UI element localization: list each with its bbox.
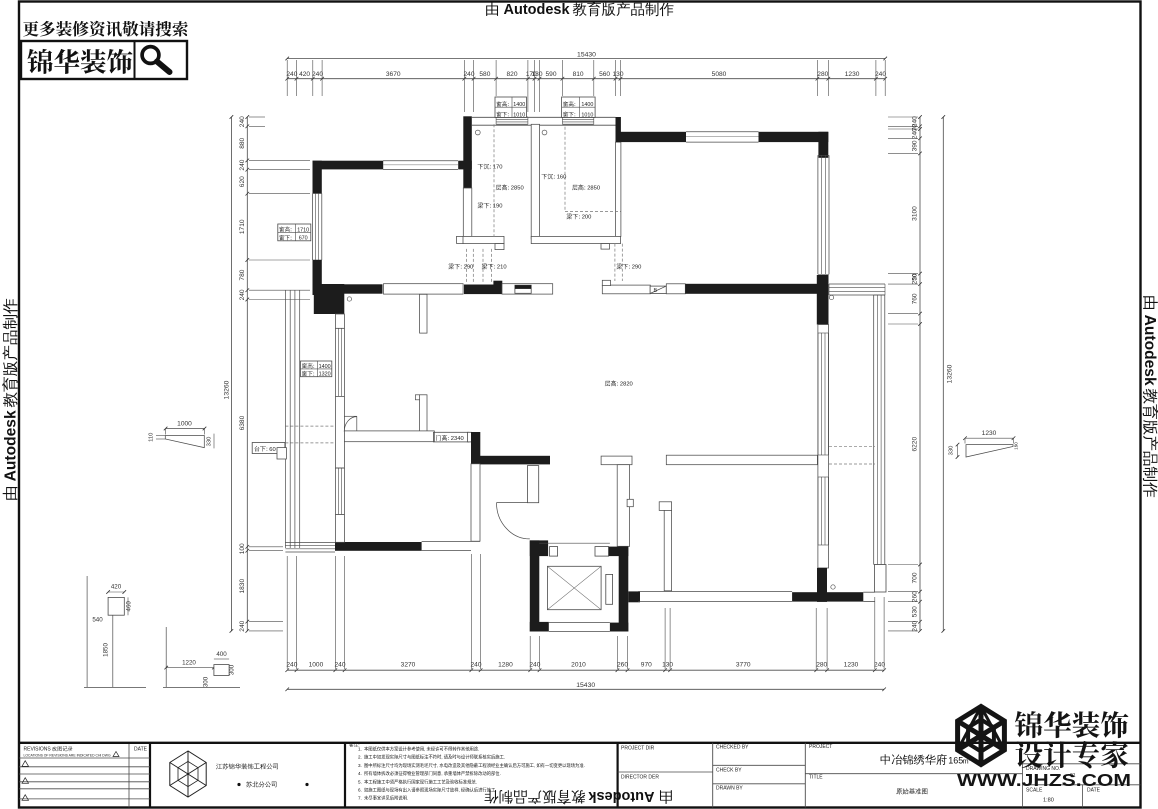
svg-text:880: 880 xyxy=(239,137,246,148)
svg-text:300: 300 xyxy=(229,664,236,675)
svg-text:B: B xyxy=(654,288,658,294)
svg-text:60: 60 xyxy=(269,447,275,453)
svg-text:20: 20 xyxy=(913,274,919,280)
svg-text:图中所标注尺寸均为现场实测毛坯尺寸, 水电改造及其他隐蔽工程: 图中所标注尺寸均为现场实测毛坯尺寸, 水电改造及其他隐蔽工程须经业主确认后方可施… xyxy=(364,762,585,769)
svg-text:590: 590 xyxy=(545,71,556,78)
svg-text:100: 100 xyxy=(239,543,246,554)
svg-text:190: 190 xyxy=(493,204,503,210)
svg-text:330: 330 xyxy=(949,446,955,456)
svg-text:3770: 3770 xyxy=(736,662,751,669)
svg-text:165: 165 xyxy=(948,756,963,766)
svg-text:15430: 15430 xyxy=(577,52,596,59)
svg-text:620: 620 xyxy=(239,176,246,187)
svg-text:CHECK BY: CHECK BY xyxy=(716,768,742,774)
svg-text:240: 240 xyxy=(875,71,886,78)
svg-text:780: 780 xyxy=(239,269,246,280)
svg-text:DIRECTOR DER: DIRECTOR DER xyxy=(621,775,659,781)
svg-text:110: 110 xyxy=(149,433,155,442)
svg-text:Autodesk: Autodesk xyxy=(3,410,20,481)
svg-text:240: 240 xyxy=(334,662,345,669)
svg-text:460: 460 xyxy=(126,601,133,612)
svg-text:130: 130 xyxy=(612,71,623,78)
svg-text:13260: 13260 xyxy=(947,364,954,383)
svg-text:160: 160 xyxy=(557,175,567,181)
svg-text:700: 700 xyxy=(912,572,919,583)
svg-text:1220: 1220 xyxy=(182,660,196,667)
svg-text:420: 420 xyxy=(299,71,310,78)
svg-text:Autodesk: Autodesk xyxy=(588,788,655,804)
svg-text:1710: 1710 xyxy=(297,227,309,233)
svg-text:1320: 1320 xyxy=(319,372,331,378)
svg-text:1000: 1000 xyxy=(177,421,192,428)
svg-text:REVISIONS: REVISIONS xyxy=(24,747,52,753)
svg-text:170: 170 xyxy=(493,165,503,171)
svg-text:TITLE: TITLE xyxy=(809,775,823,781)
svg-text:330: 330 xyxy=(207,437,213,447)
svg-text:240: 240 xyxy=(470,662,481,669)
svg-text:1010: 1010 xyxy=(513,112,525,118)
svg-text:1400: 1400 xyxy=(319,364,331,370)
svg-text:1280: 1280 xyxy=(498,662,513,669)
svg-text:1010: 1010 xyxy=(581,112,593,118)
svg-text:240: 240 xyxy=(239,159,246,170)
svg-text:400: 400 xyxy=(216,651,227,658)
svg-text:Autodesk: Autodesk xyxy=(504,2,571,18)
svg-text:1230: 1230 xyxy=(844,662,859,669)
svg-text:210: 210 xyxy=(497,265,507,271)
svg-text:15430: 15430 xyxy=(576,682,595,689)
svg-text:2820: 2820 xyxy=(620,382,633,388)
svg-text:240: 240 xyxy=(529,662,540,669)
svg-text:240: 240 xyxy=(874,662,885,669)
svg-text:13260: 13260 xyxy=(223,380,230,399)
svg-text:240: 240 xyxy=(463,71,474,78)
svg-text:240: 240 xyxy=(239,116,246,127)
svg-text:240: 240 xyxy=(286,662,297,669)
svg-text:如施工图纸与现场有出入请参照现场实际尺寸放样, 经确认后进行: 如施工图纸与现场有出入请参照现场实际尺寸放样, 经确认后进行施工. xyxy=(364,787,497,794)
svg-text:7.: 7. xyxy=(358,796,362,801)
svg-text:1000: 1000 xyxy=(309,662,324,669)
svg-text:LOCATIONS OF REVISIONS ARE IND: LOCATIONS OF REVISIONS ARE INDICATED CHI… xyxy=(24,754,111,758)
svg-text:6.: 6. xyxy=(358,788,362,793)
svg-text:280: 280 xyxy=(817,71,828,78)
svg-text:530: 530 xyxy=(912,606,919,617)
svg-text:所有墙体拆改必须征得物业管理部门同意, 承重墙体严禁拆除改动: 所有墙体拆改必须征得物业管理部门同意, 承重墙体严禁拆除改动的部位. xyxy=(364,770,501,777)
svg-text:820: 820 xyxy=(506,71,517,78)
svg-text:2340: 2340 xyxy=(451,436,464,442)
svg-text:560: 560 xyxy=(599,71,610,78)
svg-text:2010: 2010 xyxy=(571,662,586,669)
svg-text:1230: 1230 xyxy=(982,430,997,437)
svg-text:240: 240 xyxy=(912,620,919,631)
svg-text:240: 240 xyxy=(239,620,246,631)
svg-text:DRAWN BY: DRAWN BY xyxy=(716,786,743,792)
svg-text:6380: 6380 xyxy=(239,415,246,430)
svg-text:本图纸仅供本方案设计参考使用, 未经许可不得转作其他用途.: 本图纸仅供本方案设计参考使用, 未经许可不得转作其他用途. xyxy=(364,746,479,753)
svg-text:200: 200 xyxy=(582,215,592,221)
svg-text:390: 390 xyxy=(912,140,919,151)
svg-text:300: 300 xyxy=(203,676,210,687)
svg-text:1830: 1830 xyxy=(239,579,246,594)
svg-text:PROJECT DIR: PROJECT DIR xyxy=(621,746,655,752)
svg-text:2.: 2. xyxy=(358,755,362,760)
svg-text:1400: 1400 xyxy=(581,102,593,108)
svg-text:3100: 3100 xyxy=(912,206,919,221)
svg-text:3270: 3270 xyxy=(401,662,416,669)
svg-text:1230: 1230 xyxy=(845,71,860,78)
svg-text:PROJECT: PROJECT xyxy=(809,744,832,750)
svg-text:1850: 1850 xyxy=(103,643,110,657)
svg-text:1400: 1400 xyxy=(513,102,525,108)
svg-text:Autodesk: Autodesk xyxy=(1141,315,1158,386)
svg-text:DATE: DATE xyxy=(134,747,148,753)
svg-text:6220: 6220 xyxy=(912,437,919,452)
svg-text:1.: 1. xyxy=(358,747,362,752)
svg-text:240: 240 xyxy=(912,128,919,139)
svg-text:施工中如发现实际尺寸与图纸标注不符时, 请及时与设计师联系核: 施工中如发现实际尺寸与图纸标注不符时, 请及时与设计师联系核实后施工. xyxy=(364,754,505,761)
svg-text:130: 130 xyxy=(531,71,542,78)
svg-text:260: 260 xyxy=(617,662,628,669)
svg-text:1710: 1710 xyxy=(239,219,246,234)
svg-text:580: 580 xyxy=(479,71,490,78)
svg-text:240: 240 xyxy=(312,71,323,78)
svg-text:3670: 3670 xyxy=(386,71,401,78)
svg-text:CHECKED BY: CHECKED BY xyxy=(716,745,749,751)
svg-text:810: 810 xyxy=(573,71,584,78)
svg-text:未尽事宜详见后附说明.: 未尽事宜详见后附说明. xyxy=(364,795,408,802)
svg-text:5.: 5. xyxy=(358,779,362,784)
svg-text:240: 240 xyxy=(239,289,246,300)
svg-text:5080: 5080 xyxy=(712,71,727,78)
svg-text:本工程施工中须严格执行国家现行施工工艺及验收标准规范.: 本工程施工中须严格执行国家现行施工工艺及验收标准规范. xyxy=(364,778,477,785)
svg-text:2850: 2850 xyxy=(587,186,600,192)
svg-text:280: 280 xyxy=(816,662,827,669)
svg-text:3.: 3. xyxy=(358,763,362,768)
svg-text:1:80: 1:80 xyxy=(1043,798,1054,804)
svg-text:260: 260 xyxy=(912,591,919,602)
svg-text:290: 290 xyxy=(464,265,474,271)
svg-text:290: 290 xyxy=(632,265,642,271)
svg-text:240: 240 xyxy=(286,71,297,78)
svg-text:WWW.JHZS.COM: WWW.JHZS.COM xyxy=(957,770,1131,790)
svg-text:420: 420 xyxy=(111,584,122,591)
svg-text:130: 130 xyxy=(662,662,673,669)
svg-text:670: 670 xyxy=(299,236,308,242)
svg-text:2850: 2850 xyxy=(511,186,524,192)
svg-text:4.: 4. xyxy=(358,771,362,776)
svg-text:540: 540 xyxy=(92,617,103,624)
svg-text:970: 970 xyxy=(641,662,652,669)
svg-text:760: 760 xyxy=(912,293,919,304)
